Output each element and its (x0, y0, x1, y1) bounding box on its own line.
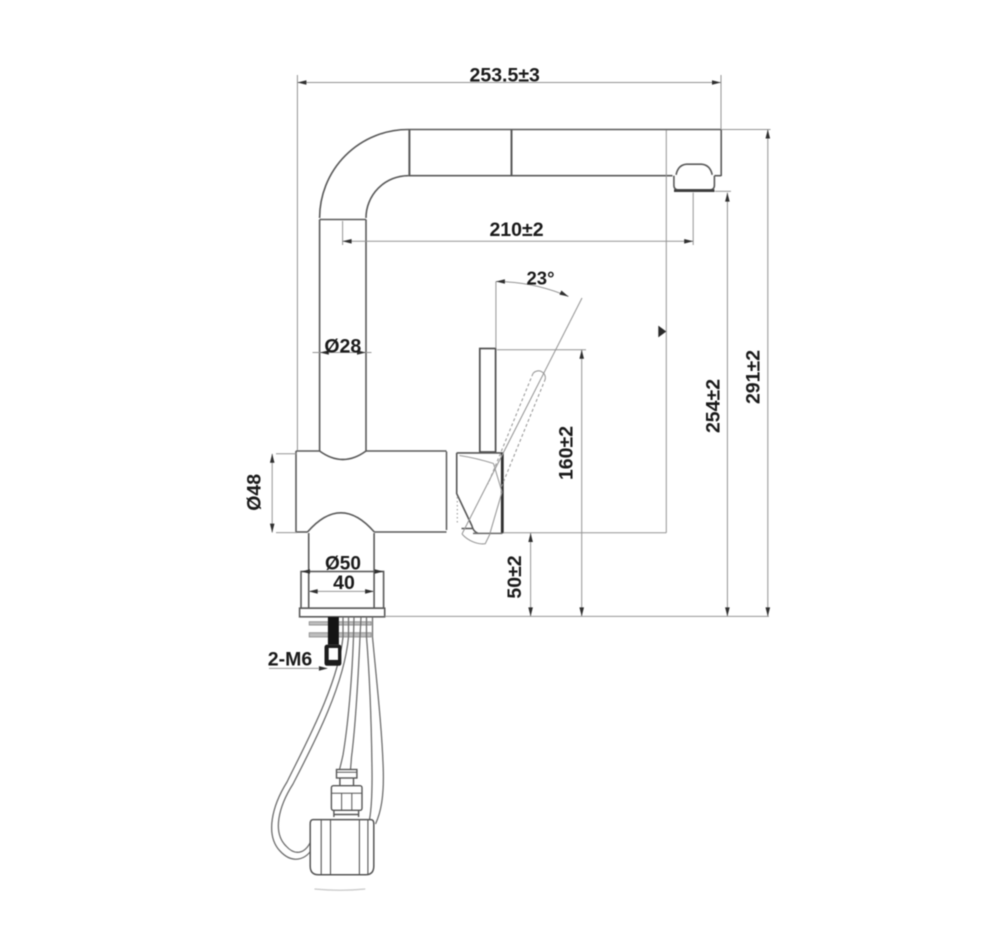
svg-text:40: 40 (333, 572, 355, 594)
svg-text:160±2: 160±2 (556, 426, 578, 480)
svg-text:210±2: 210±2 (489, 219, 543, 241)
svg-text:Ø48: Ø48 (243, 474, 265, 511)
svg-text:23°: 23° (527, 268, 555, 289)
svg-text:Ø28: Ø28 (324, 336, 361, 358)
svg-text:2-M6: 2-M6 (268, 649, 313, 671)
svg-text:253.5±3: 253.5±3 (470, 64, 540, 86)
svg-text:50±2: 50±2 (504, 555, 526, 598)
svg-text:254±2: 254±2 (703, 379, 725, 433)
svg-text:291±2: 291±2 (743, 350, 765, 404)
